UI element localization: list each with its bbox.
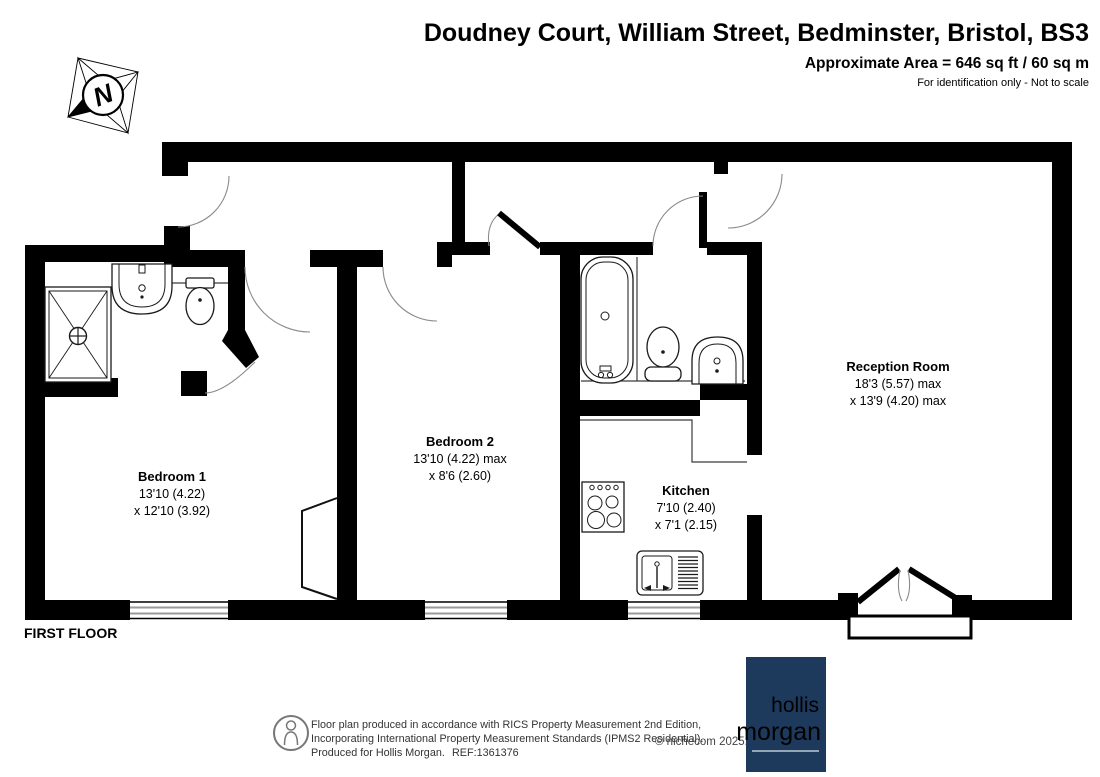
ensuite-toilet	[186, 278, 214, 325]
wall-reception-stub	[714, 162, 728, 174]
wall-bed2-step	[437, 242, 452, 267]
wall-entry-jamb	[162, 142, 188, 176]
header: Doudney Court, William Street, Bedminste…	[424, 19, 1089, 89]
ensuite-fixtures	[45, 264, 228, 382]
wall-ensuite-door-leaf	[222, 330, 259, 368]
wall-kitchen-reception-bottom	[747, 515, 762, 600]
logo-word-morgan: morgan	[736, 718, 821, 746]
kitchen-counter-line	[580, 420, 747, 462]
wall-bottom-1	[25, 600, 130, 620]
room-label-bedroom2-dim2: x 8'6 (2.60)	[429, 469, 491, 483]
wall-cupboard-left	[452, 162, 465, 255]
bathtub	[581, 257, 633, 383]
person-scale-icon	[274, 716, 308, 750]
floor-label: FIRST FLOOR	[24, 625, 117, 641]
chimney-breast-outline	[302, 498, 337, 599]
footer-line1: Floor plan produced in accordance with R…	[311, 719, 701, 731]
nichecom-copyright: © nichecom 2025.	[655, 736, 748, 748]
cupboard-door-arc	[488, 214, 499, 246]
wall-top	[162, 142, 1072, 162]
room-label-reception-dim1: 18'3 (5.57) max	[855, 377, 942, 391]
footer-ref: REF:1361376	[452, 747, 519, 759]
wall-bottom-4	[700, 600, 852, 620]
logo-word-hollis: hollis	[771, 694, 819, 717]
wall-ensuite-right	[228, 250, 245, 333]
french-door-leaf-right	[909, 569, 962, 602]
wall-bottom-5	[962, 600, 1072, 620]
window-bedroom2	[425, 601, 507, 619]
wall-cupboard-a	[465, 242, 490, 255]
bedroom1-door-arc	[245, 267, 310, 332]
bathroom-fixtures	[581, 257, 745, 384]
window-kitchen	[628, 601, 700, 619]
window-bedroom1	[130, 601, 228, 619]
wall-bed1-bed2	[337, 253, 357, 600]
wall-right	[1052, 142, 1072, 620]
floorplan-svg: Doudney Court, William Street, Bedminste…	[0, 0, 1100, 777]
wall-bathroom-door-leaf	[699, 192, 707, 248]
room-label-kitchen-dim1: 7'10 (2.40)	[656, 501, 715, 515]
kitchen-sink-unit	[637, 551, 703, 595]
wall-ensuite-corner	[181, 371, 207, 396]
bathroom-sink	[692, 337, 743, 384]
wall-bathroom-top-left	[540, 242, 653, 255]
hollis-morgan-logo: hollis morgan	[736, 657, 826, 772]
entry-door-arc	[178, 176, 229, 227]
french-door-arc-left	[898, 570, 902, 601]
cupboard-door-leaf	[499, 213, 540, 247]
footer: Floor plan produced in accordance with R…	[274, 716, 748, 759]
room-label-bedroom1-dim1: 13'10 (4.22)	[139, 487, 205, 501]
page-title: Doudney Court, William Street, Bedminste…	[424, 19, 1089, 47]
approximate-area: Approximate Area = 646 sq ft / 60 sq m	[805, 55, 1089, 72]
french-door-arc-right	[906, 570, 910, 601]
french-door-leaf-left	[858, 569, 899, 602]
reception-door-arc	[728, 174, 782, 228]
room-label-bedroom2-dim1: 13'10 (4.22) max	[413, 452, 507, 466]
wall-bathroom-top-right	[707, 242, 762, 255]
floorplan-page: Doudney Court, William Street, Bedminste…	[0, 0, 1100, 777]
room-label-bedroom1-dim2: x 12'10 (3.92)	[134, 504, 210, 518]
balcony-outline	[849, 616, 971, 638]
footer-line3: Produced for Hollis Morgan.	[311, 747, 445, 759]
ensuite-sink	[112, 264, 172, 314]
wall-bathroom-bottom-left	[560, 400, 700, 416]
footer-line2: Incorporating International Property Mea…	[311, 733, 703, 745]
wall-ensuite-top	[25, 245, 190, 262]
room-labels: Bedroom 1 13'10 (4.22) x 12'10 (3.92) Be…	[134, 359, 950, 532]
wall-left	[25, 245, 45, 620]
wall-bottom-2	[228, 600, 425, 620]
bedroom2-door-arc	[383, 267, 437, 321]
identification-note: For identification only - Not to scale	[917, 77, 1089, 89]
room-label-bedroom2-name: Bedroom 2	[426, 434, 494, 449]
stove-hob	[582, 482, 624, 532]
room-label-bedroom1-name: Bedroom 1	[138, 469, 206, 484]
wall-bed2-kitchen	[560, 242, 580, 600]
shower-tray	[45, 287, 111, 382]
bathroom-toilet	[645, 327, 681, 381]
bathroom-door-arc	[653, 196, 703, 246]
room-label-kitchen-name: Kitchen	[662, 483, 710, 498]
room-label-reception-name: Reception Room	[846, 359, 949, 374]
wall-kitchen-reception-top	[747, 255, 762, 455]
room-label-reception-dim2: x 13'9 (4.20) max	[850, 394, 947, 408]
wall-bottom-3	[507, 600, 628, 620]
compass-north-icon: N	[68, 58, 138, 133]
room-label-kitchen-dim2: x 7'1 (2.15)	[655, 518, 717, 532]
